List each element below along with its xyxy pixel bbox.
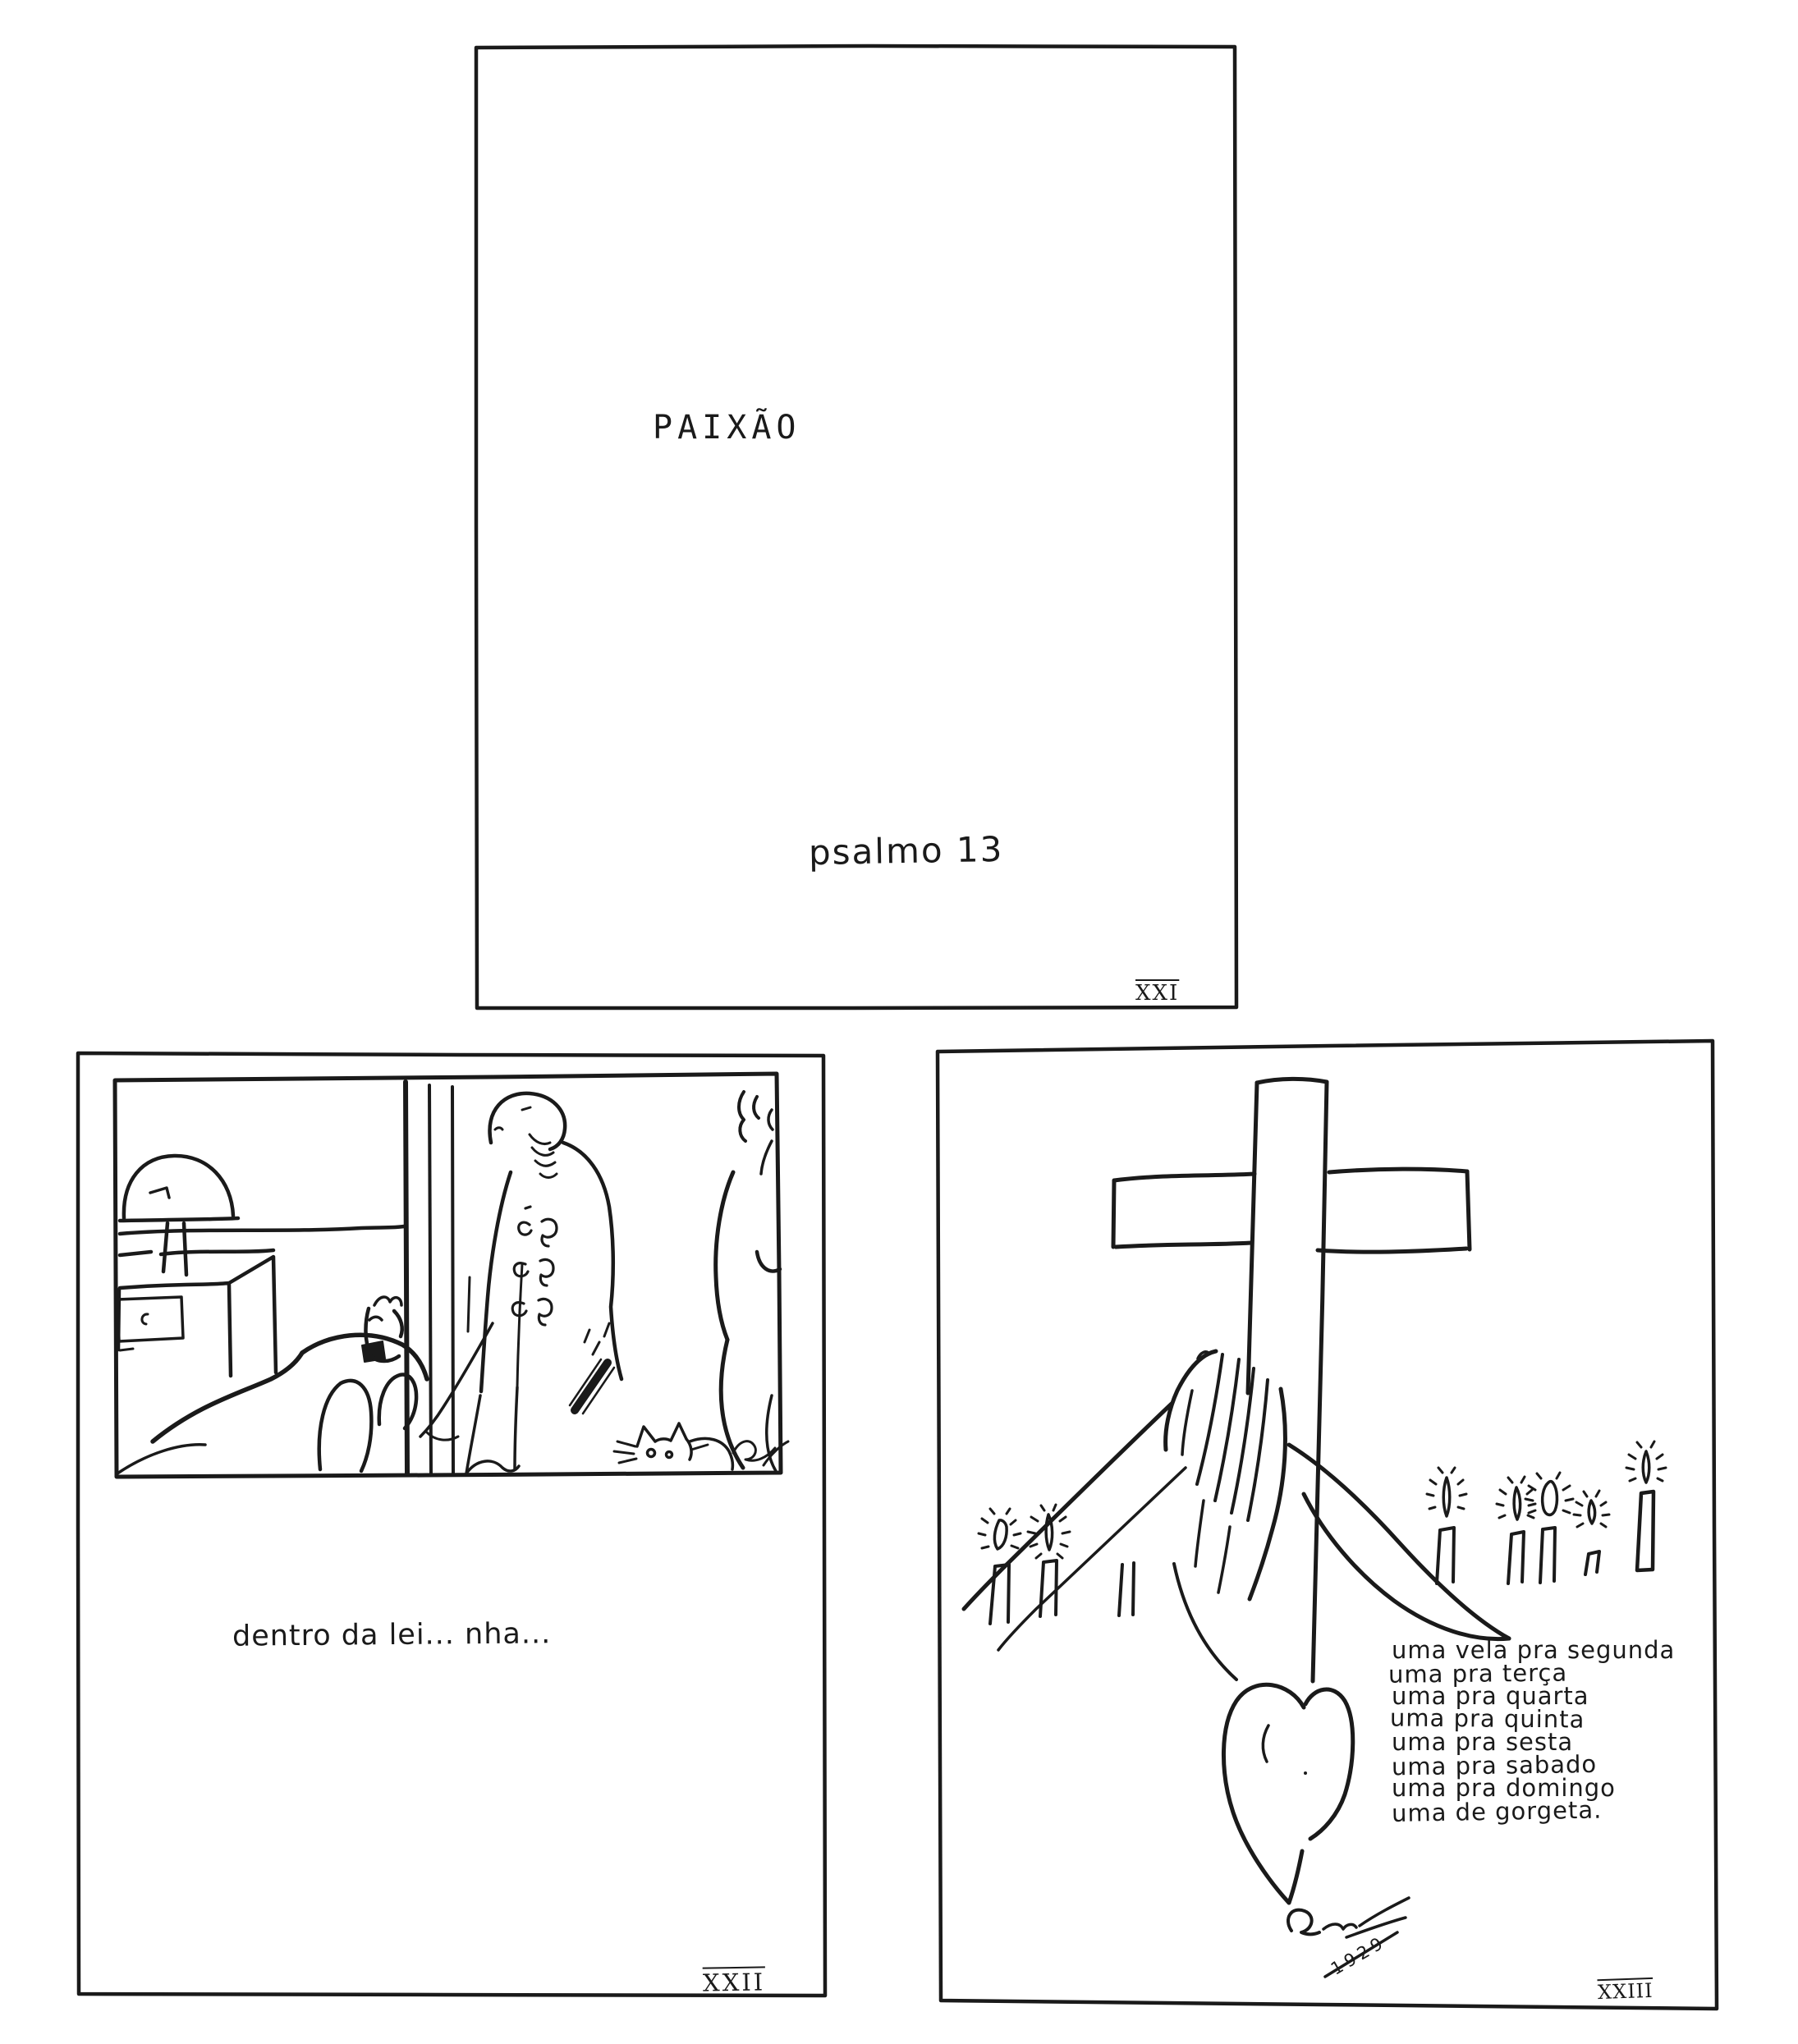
poem-line: uma pra terça <box>1388 1660 1672 1686</box>
page-number-xxiii: XXIII <box>1598 1979 1654 2004</box>
poem-line: uma pra quinta <box>1390 1706 1674 1731</box>
page-subtitle: psalmo 13 <box>809 829 1004 873</box>
page-number-xxi: XXI <box>1135 981 1179 1006</box>
page-xxiii-sheet: uma vela pra segunda uma pra terça uma p… <box>936 1043 1716 2010</box>
page-title: PAIXÃO <box>653 409 801 447</box>
panel-caption: dentro da lei... nha... <box>232 1617 552 1652</box>
poem-line: uma de gorgeta. <box>1392 1797 1676 1825</box>
scanned-artwork-canvas: PAIXÃO psalmo 13 XXI dentro da lei... nh… <box>0 0 1798 2044</box>
page-xxi-sheet: PAIXÃO psalmo 13 XXI <box>475 45 1238 1010</box>
candle-poem: uma vela pra segunda uma pra terça uma p… <box>1392 1638 1675 1822</box>
poem-line: uma pra sesta <box>1392 1730 1675 1753</box>
page-number-xxii: XXII <box>703 1968 766 1996</box>
page-xxii-sheet: dentro da lei... nha... XXII <box>76 1051 826 1997</box>
poem-line: uma pra sabado <box>1392 1752 1676 1779</box>
signature-year: 1929 <box>1328 1932 1390 1979</box>
poem-line: uma vela pra segunda <box>1392 1638 1675 1661</box>
